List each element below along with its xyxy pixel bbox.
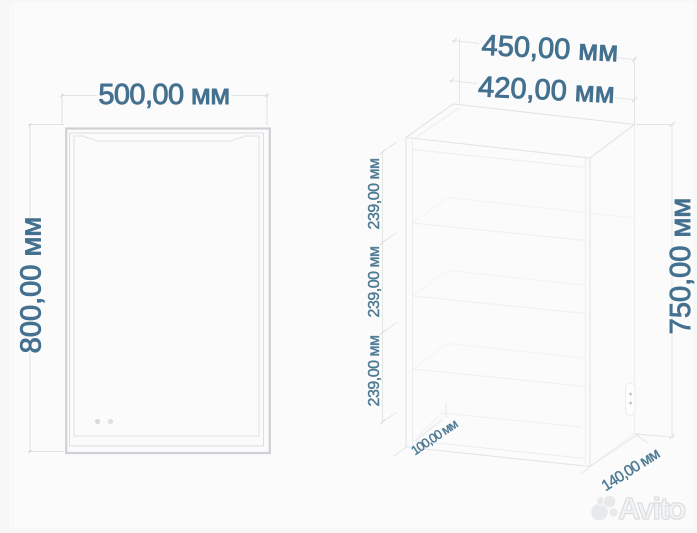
svg-text:750,00 мм: 750,00 мм [665,198,697,335]
svg-text:500,00 мм: 500,00 мм [98,79,229,111]
svg-text:239,00 мм: 239,00 мм [366,247,383,318]
svg-text:450,00 мм: 450,00 мм [481,30,619,69]
svg-text:239,00 мм: 239,00 мм [366,336,383,407]
svg-text:239,00 мм: 239,00 мм [366,159,383,230]
svg-text:Avito: Avito [618,491,685,526]
svg-text:800,00 мм: 800,00 мм [16,217,48,354]
svg-text:420,00 мм: 420,00 мм [477,71,615,110]
